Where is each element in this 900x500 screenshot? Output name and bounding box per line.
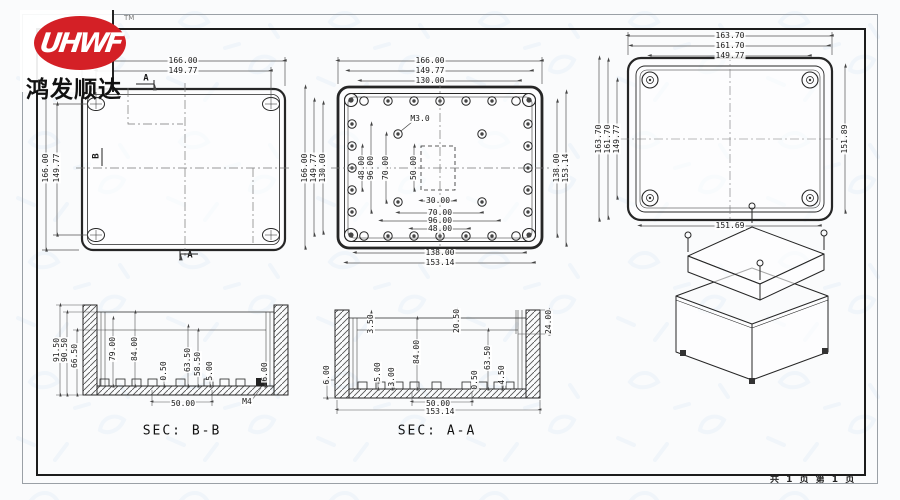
page-info: 共 1 页 第 1 页 [770,472,870,485]
sheet-inner-border [36,28,866,476]
brand-logo-text: UHWF [38,30,123,57]
brand-logo: UHWF [34,16,126,70]
company-name: 鸿发顺达 [26,70,136,104]
trademark-symbol: TM [124,14,134,22]
title-block-logo-cell: UHWF TM 鸿发顺达 [20,10,114,92]
drawing-sheet: UHWF TM 鸿发顺达 共 1 页 第 1 页 166.00149.77166… [0,0,900,500]
